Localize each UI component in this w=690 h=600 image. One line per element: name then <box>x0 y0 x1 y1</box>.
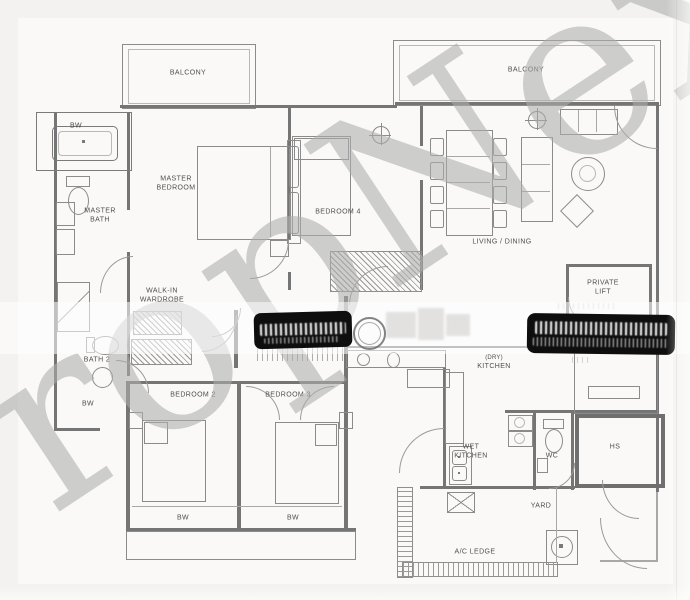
room-label-bath2: BATH 2 <box>84 357 110 366</box>
room-label-bw-top: BW <box>70 123 82 132</box>
wall <box>126 383 130 531</box>
table-line <box>447 182 490 183</box>
dining-chair <box>493 138 507 156</box>
wall <box>54 428 100 431</box>
bed <box>197 146 291 240</box>
room-label-bedroom3: BEDROOM 3 <box>265 392 311 401</box>
bed-line <box>270 147 271 237</box>
room-label-bedroom2: BEDROOM 2 <box>170 392 216 401</box>
kitchen-basin <box>387 352 400 368</box>
room-label-hs: HS <box>610 444 621 453</box>
wall <box>237 384 241 531</box>
wash-basin <box>92 367 113 388</box>
wall <box>120 105 397 108</box>
room-label-yard: YARD <box>531 503 552 512</box>
wall <box>533 410 536 490</box>
kitchen-island <box>407 369 450 388</box>
room-label-living-dining: LIVING / DINING <box>472 239 531 248</box>
sofa <box>521 137 553 222</box>
dining-chair <box>493 162 507 180</box>
nightstand <box>339 412 353 429</box>
wall <box>420 106 423 146</box>
dining-chair <box>430 186 444 204</box>
pillow <box>315 424 337 446</box>
room-label-dry-kitchen: (DRY) KITCHEN <box>477 355 511 371</box>
sofa-line <box>578 110 579 132</box>
faded-stamp-fragment <box>418 308 444 340</box>
corner-cabinet <box>447 492 475 513</box>
room-label-wc: WC <box>546 453 558 462</box>
room-label-master-bedroom: MASTER BEDROOM <box>157 175 196 193</box>
bathtub-inner <box>58 131 112 156</box>
redacted-stamp-left <box>254 311 353 350</box>
table-line <box>447 208 490 209</box>
sofa-line <box>522 164 550 165</box>
table-line <box>447 156 490 157</box>
wall <box>288 272 291 290</box>
faded-stamp-fragment <box>386 312 416 338</box>
page-edge-shading <box>0 586 690 600</box>
wall <box>344 381 348 531</box>
wall <box>571 410 574 490</box>
dining-chair <box>493 186 507 204</box>
ceiling-fan-icon <box>372 126 390 144</box>
room-label-private-lift: PRIVATE LIFT <box>587 279 619 297</box>
nightstand <box>129 412 143 429</box>
room-label-bw-bed2: BW <box>177 515 189 524</box>
redacted-text-noise <box>533 337 669 348</box>
pillow <box>294 138 349 160</box>
dining-chair <box>493 210 507 228</box>
redacted-text-noise <box>264 336 340 344</box>
toilet-tank <box>66 176 90 187</box>
dining-chair <box>430 138 444 156</box>
lift-car <box>588 386 640 399</box>
washer-dot <box>559 544 563 548</box>
wall-line <box>656 492 658 562</box>
wall <box>395 102 659 105</box>
kitchen-cabinet <box>445 372 464 444</box>
bay-window-box <box>126 531 356 560</box>
coffee-table-inner <box>579 165 596 182</box>
redacted-text-noise <box>260 322 346 336</box>
page-crease <box>676 0 677 600</box>
room-label-balcony-right: BALCONY <box>508 67 544 76</box>
dining-table <box>446 130 493 236</box>
burner-dot <box>458 472 460 474</box>
dining-chair <box>430 162 444 180</box>
vanity-sink <box>56 229 75 255</box>
kitchen-sink <box>357 353 370 366</box>
toilet-tank <box>543 419 564 429</box>
room-label-balcony-left: BALCONY <box>170 70 206 79</box>
faded-stamp-fragment <box>446 314 470 336</box>
room-label-wet-kitchen: WET KITCHEN <box>454 443 488 461</box>
sofa <box>560 109 618 135</box>
faint-small-text <box>572 357 590 363</box>
sofa-line <box>596 110 597 132</box>
sofa-line <box>522 191 550 192</box>
toilet-bowl <box>545 429 563 453</box>
basin-circle <box>514 417 525 428</box>
basin-circle <box>514 433 525 444</box>
agency-circle-stamp <box>353 317 386 350</box>
vanity-sink <box>56 202 75 226</box>
floorplan-scan: BALCONY BALCONY BW MASTER BATH BATH 2 <box>0 0 690 600</box>
window-line <box>132 506 342 507</box>
room-label-ac-ledge: A/C LEDGE <box>455 549 496 558</box>
dining-chair <box>430 210 444 228</box>
ceiling-fan-icon <box>528 111 546 129</box>
wall <box>566 264 652 267</box>
redacted-stamp-right <box>527 313 676 355</box>
circle-stamp-inner-ring <box>358 322 381 345</box>
bathtub-drain <box>82 140 85 143</box>
room-label-master-bath: MASTER BATH <box>84 207 116 225</box>
room-label-bw-left: BW <box>82 401 94 410</box>
room-label-bedroom4: BEDROOM 4 <box>315 209 361 218</box>
ac-ledge-hatch <box>402 562 558 577</box>
ledge-line <box>556 488 557 563</box>
redacted-text-noise <box>535 321 667 336</box>
pillow <box>144 422 168 444</box>
room-label-bw-bed3: BW <box>287 515 299 524</box>
